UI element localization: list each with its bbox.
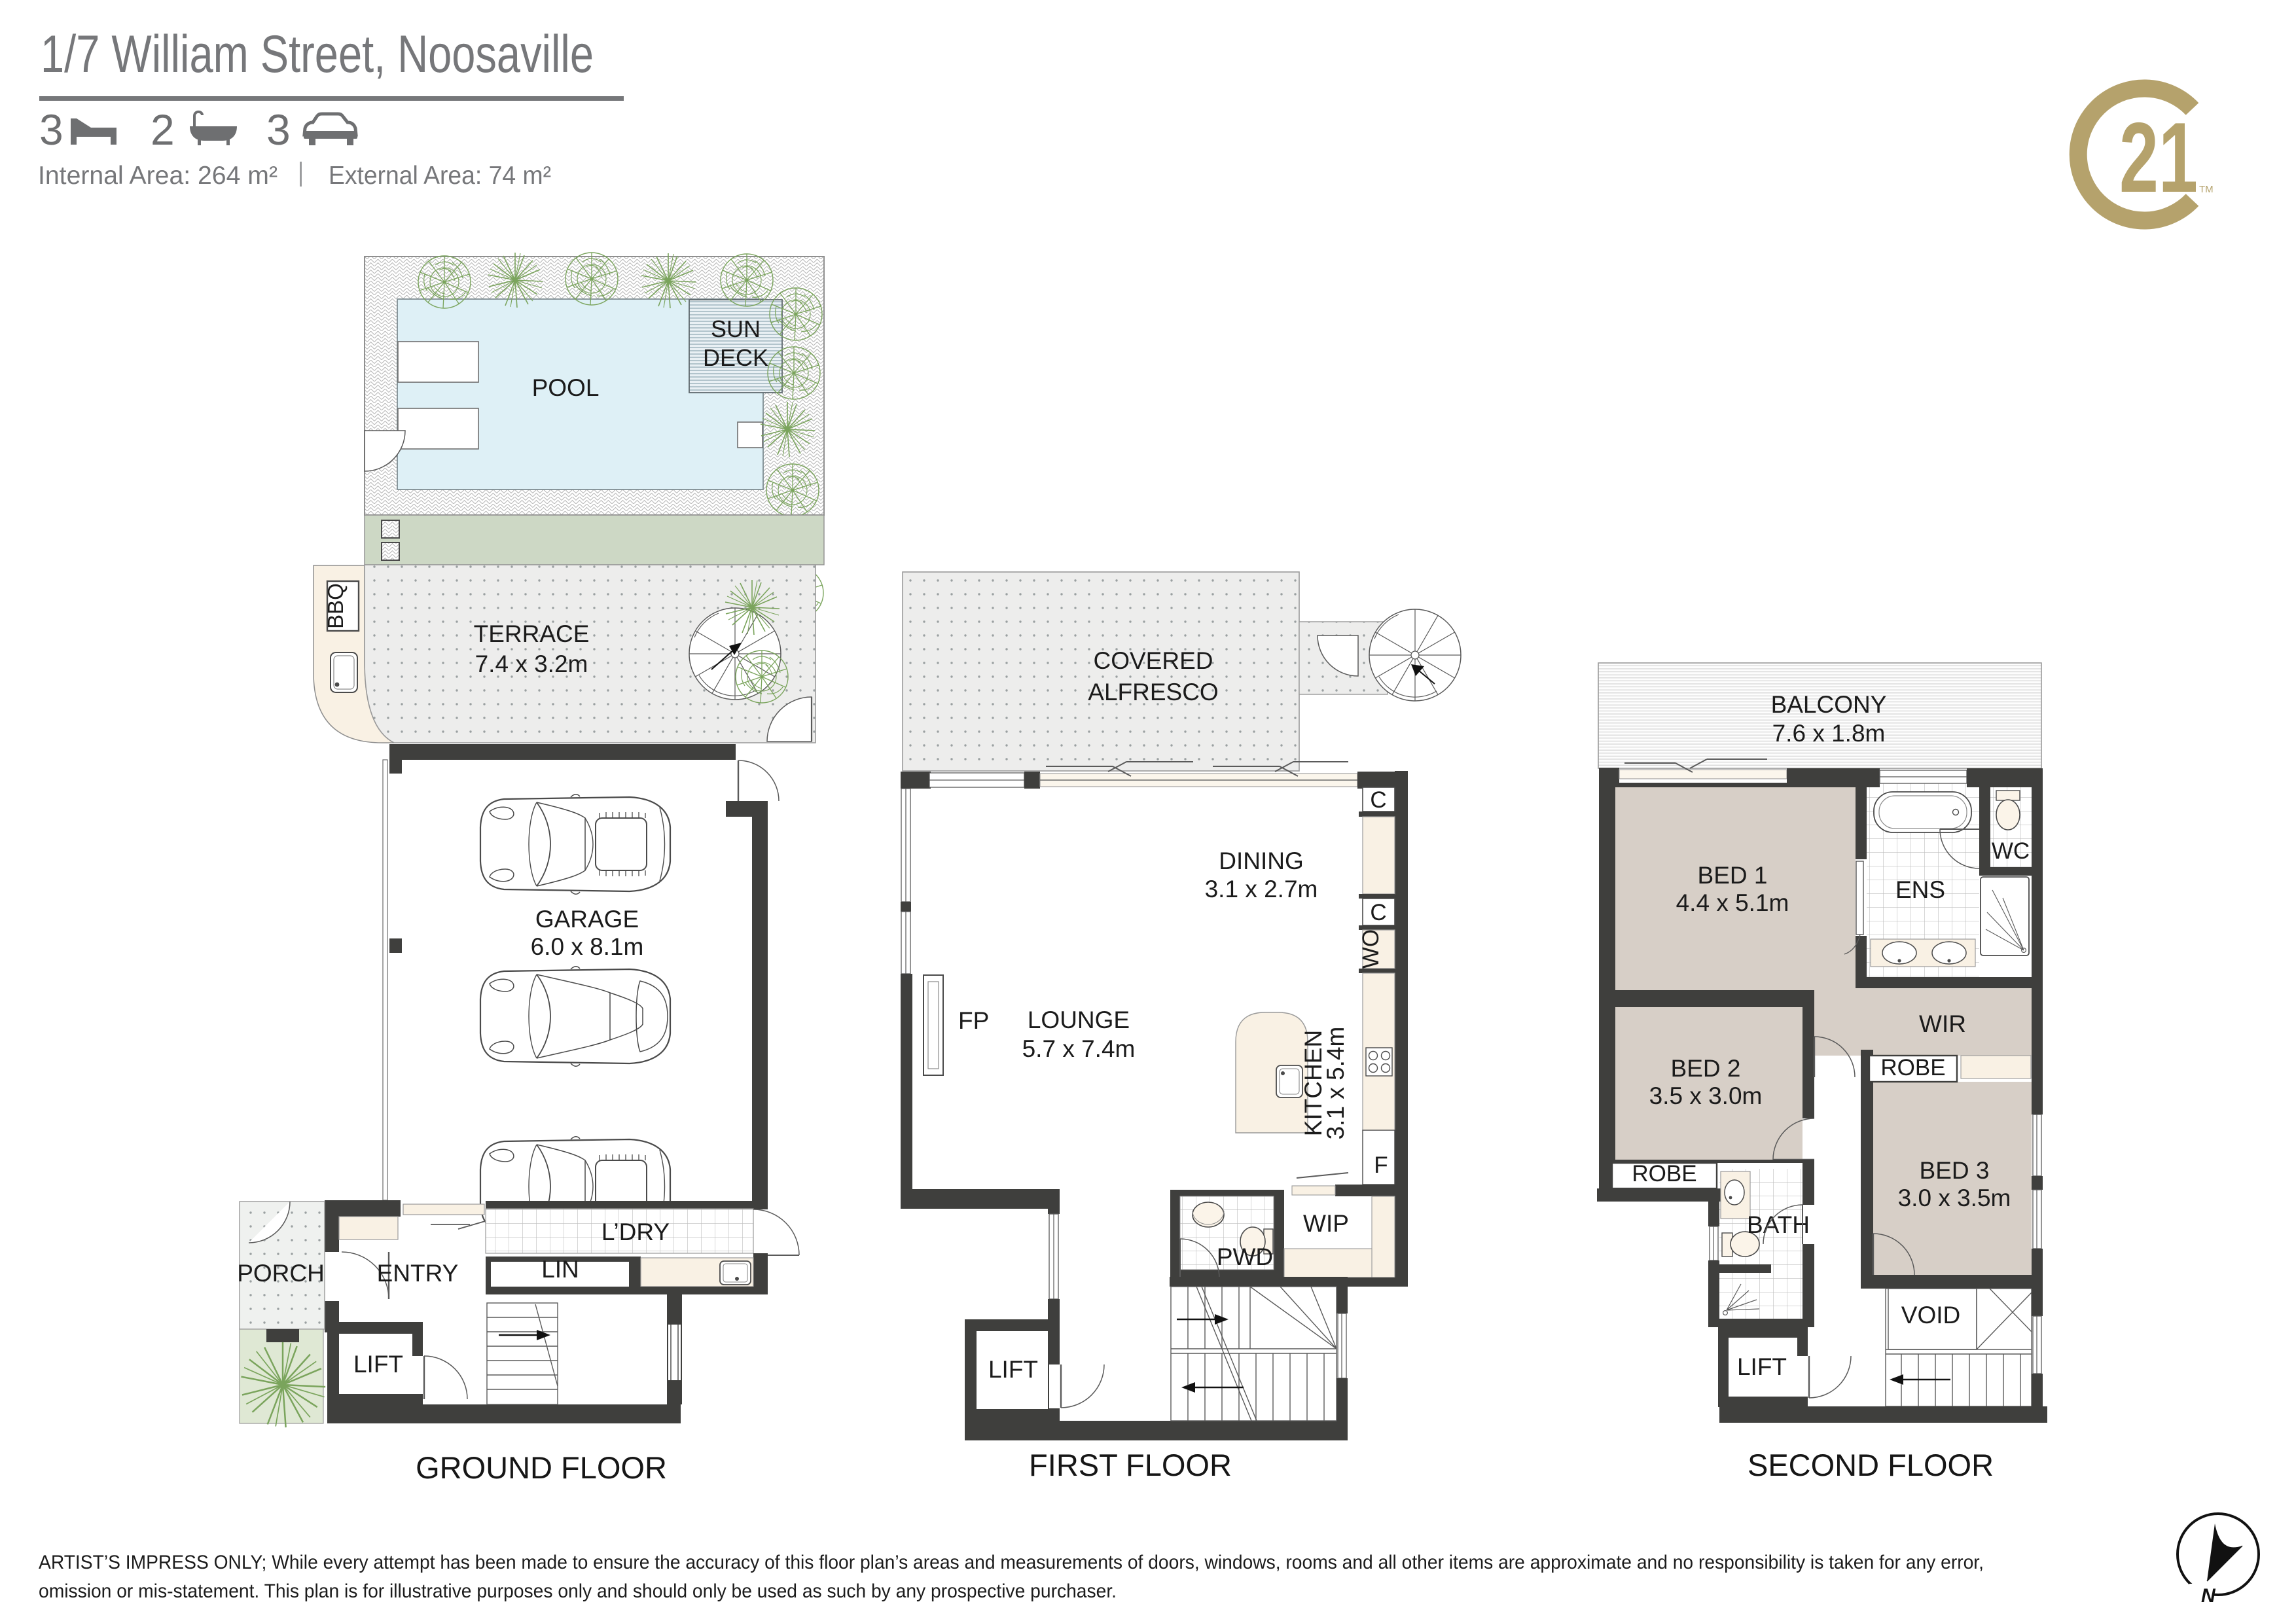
svg-text:FIRST FLOOR: FIRST FLOOR	[1029, 1448, 1232, 1482]
svg-text:21: 21	[2119, 102, 2198, 213]
svg-text:Internal Area: 264 m²: Internal Area: 264 m²	[38, 162, 278, 190]
svg-text:WIR: WIR	[1919, 1010, 1966, 1037]
svg-text:BED 2: BED 2	[1671, 1055, 1741, 1082]
svg-text:3: 3	[266, 105, 291, 154]
svg-text:WC: WC	[1992, 838, 2030, 864]
svg-text:ARTIST’S IMPRESS ONLY; While e: ARTIST’S IMPRESS ONLY; While every attem…	[39, 1552, 1984, 1573]
svg-text:BED 1: BED 1	[1698, 862, 1768, 889]
svg-text:TM: TM	[2199, 184, 2214, 195]
svg-text:omission or mis-statement. Thi: omission or mis-statement. This plan is …	[39, 1580, 1117, 1602]
svg-text:BED 3: BED 3	[1920, 1157, 1990, 1184]
svg-text:DECK: DECK	[703, 344, 768, 371]
svg-text:SUN: SUN	[711, 315, 761, 342]
svg-text:WO: WO	[1358, 929, 1384, 969]
svg-text:BATH: BATH	[1747, 1211, 1810, 1238]
svg-text:BALCONY: BALCONY	[1771, 691, 1887, 718]
svg-text:FP: FP	[958, 1007, 989, 1034]
svg-text:4.4 x 5.1m: 4.4 x 5.1m	[1676, 889, 1789, 916]
svg-text:5.7 x 7.4m: 5.7 x 7.4m	[1022, 1035, 1136, 1062]
svg-text:ENTRY: ENTRY	[377, 1260, 459, 1287]
svg-text:3.5 x 3.0m: 3.5 x 3.0m	[1649, 1082, 1763, 1109]
svg-text:TERRACE: TERRACE	[474, 620, 590, 647]
svg-text:3.1 x 2.7m: 3.1 x 2.7m	[1205, 876, 1318, 902]
svg-text:BBQ: BBQ	[323, 583, 348, 629]
svg-text:7.6 x 1.8m: 7.6 x 1.8m	[1772, 720, 1886, 747]
svg-text:3.0 x 3.5m: 3.0 x 3.5m	[1898, 1185, 2011, 1211]
svg-text:SECOND FLOOR: SECOND FLOOR	[1748, 1448, 1994, 1482]
svg-text:External Area: 74 m²: External Area: 74 m²	[329, 162, 551, 190]
svg-text:LIFT: LIFT	[988, 1356, 1038, 1383]
svg-text:7.4 x 3.2m: 7.4 x 3.2m	[475, 651, 588, 677]
svg-text:1/7 William Street, Noosaville: 1/7 William Street, Noosaville	[41, 25, 594, 84]
svg-text:VOID: VOID	[1901, 1302, 1960, 1329]
svg-text:6.0 x 8.1m: 6.0 x 8.1m	[531, 933, 644, 960]
svg-text:ENS: ENS	[1895, 876, 1945, 903]
svg-text:C: C	[1370, 787, 1386, 813]
svg-text:3: 3	[39, 105, 63, 154]
svg-text:LIFT: LIFT	[1737, 1353, 1787, 1380]
svg-text:PORCH: PORCH	[237, 1260, 325, 1287]
svg-text:GARAGE: GARAGE	[535, 906, 639, 933]
svg-text:ALFRESCO: ALFRESCO	[1088, 679, 1218, 705]
svg-text:3.1 x 5.4m: 3.1 x 5.4m	[1322, 1027, 1349, 1140]
svg-text:2: 2	[151, 105, 175, 154]
svg-text:ROBE: ROBE	[1632, 1161, 1696, 1186]
svg-text:C: C	[1370, 900, 1386, 925]
svg-text:LIFT: LIFT	[353, 1351, 403, 1378]
svg-text:LOUNGE: LOUNGE	[1028, 1007, 1130, 1033]
svg-text:N: N	[2201, 1585, 2216, 1607]
svg-text:LIN: LIN	[541, 1256, 579, 1283]
svg-text:DINING: DINING	[1219, 847, 1304, 874]
svg-text:POOL: POOL	[532, 374, 600, 401]
svg-text:PWD: PWD	[1217, 1243, 1273, 1270]
svg-text:COVERED: COVERED	[1094, 647, 1213, 674]
svg-text:ROBE: ROBE	[1880, 1055, 1945, 1080]
svg-text:WIP: WIP	[1303, 1210, 1349, 1237]
svg-text:F: F	[1374, 1152, 1388, 1178]
svg-text:L’DRY: L’DRY	[601, 1219, 670, 1245]
svg-text:GROUND FLOOR: GROUND FLOOR	[416, 1450, 667, 1485]
